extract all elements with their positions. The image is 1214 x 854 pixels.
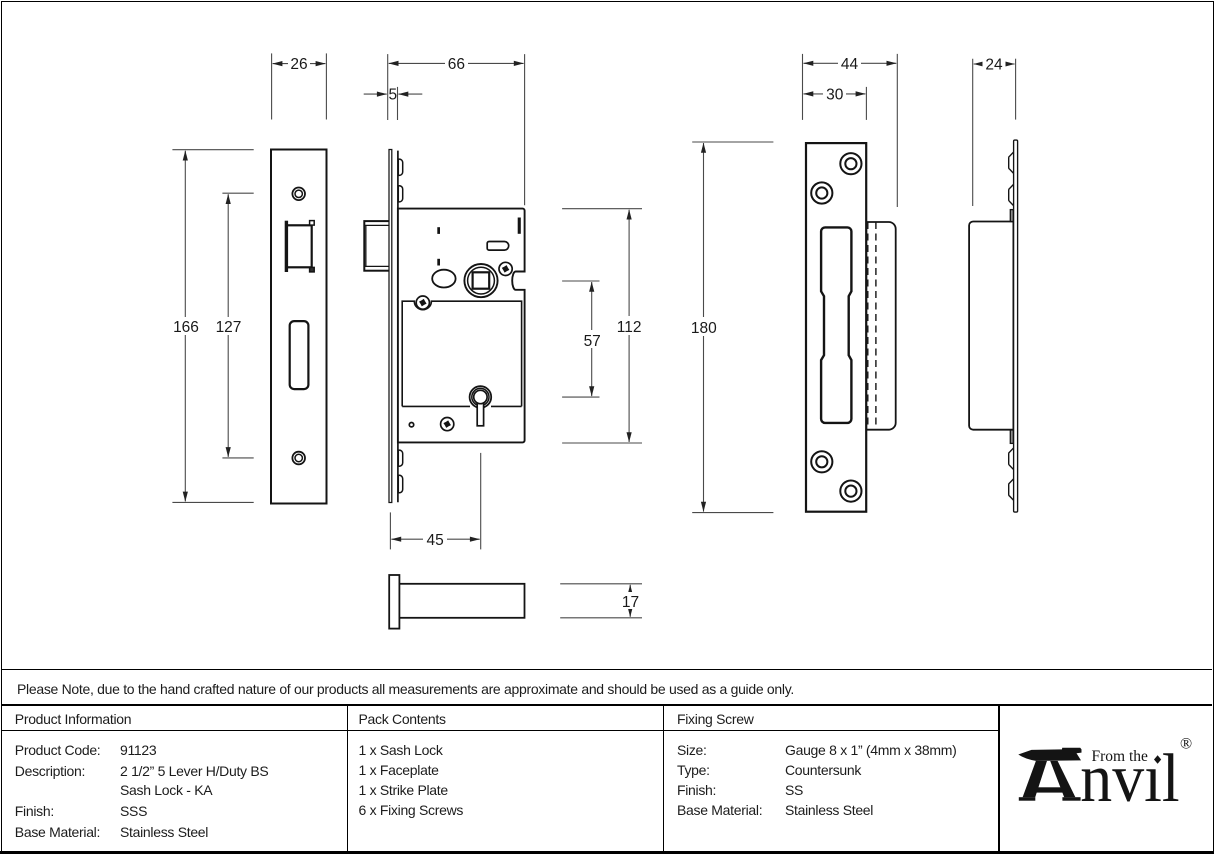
svg-text:®: ® <box>1180 736 1192 753</box>
svg-text:From the: From the <box>1092 748 1149 765</box>
